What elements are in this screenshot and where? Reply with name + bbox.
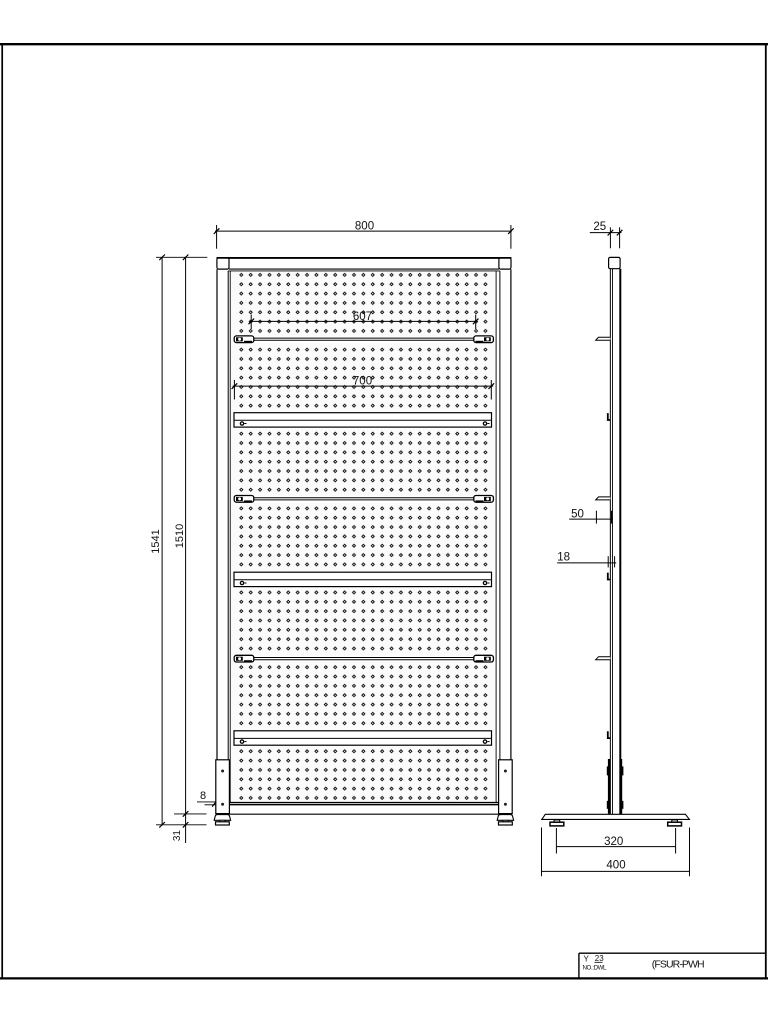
svg-text:50: 50 (571, 508, 584, 520)
svg-text:320: 320 (604, 836, 623, 848)
svg-text:18: 18 (557, 551, 570, 563)
svg-text:(FSUR-PWH: (FSUR-PWH (652, 959, 705, 971)
svg-text:NO.:DWL: NO.:DWL (583, 965, 608, 972)
svg-text:25: 25 (593, 221, 606, 233)
svg-text:800: 800 (355, 221, 374, 233)
svg-text:Y: Y (584, 954, 590, 963)
svg-text:700: 700 (353, 375, 372, 387)
svg-text:607: 607 (353, 311, 372, 323)
svg-text:23: 23 (595, 954, 604, 963)
svg-text:1510: 1510 (174, 524, 186, 548)
svg-text:31: 31 (172, 830, 183, 842)
svg-text:8: 8 (200, 790, 206, 802)
svg-text:400: 400 (606, 859, 625, 871)
svg-text:1541: 1541 (150, 529, 162, 553)
